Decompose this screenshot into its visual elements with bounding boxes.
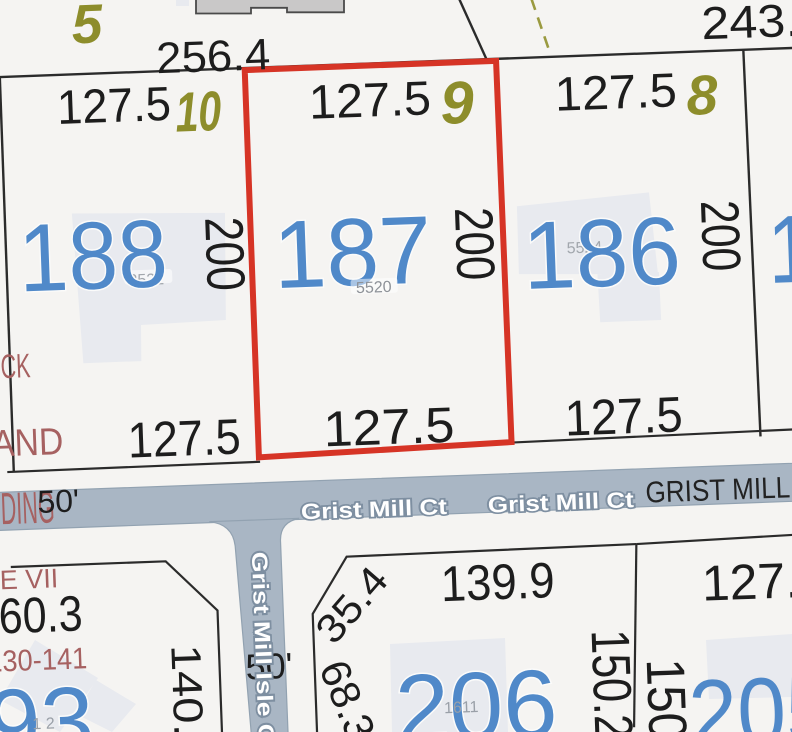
svg-text:50': 50' [37,482,80,520]
svg-text:127.5: 127.5 [56,78,172,135]
svg-text:127.5: 127.5 [127,408,242,468]
svg-text:8: 8 [685,63,719,127]
svg-text:5: 5 [71,0,105,55]
svg-text:GRIST MILL C: GRIST MILL C [645,470,792,509]
svg-text:ROCK: ROCK [0,347,31,387]
svg-text:18: 18 [766,194,792,304]
svg-text:1 2: 1 2 [32,715,55,732]
svg-text:140.: 140. [162,644,212,732]
svg-text:200: 200 [689,199,752,272]
svg-text:127.5: 127.5 [701,551,792,612]
svg-text:60.3: 60.3 [0,585,84,644]
svg-text:206: 206 [393,650,559,732]
svg-text:256.4: 256.4 [155,30,271,83]
svg-text:188: 188 [17,200,170,312]
svg-text:127.5: 127.5 [322,397,455,458]
svg-text:5520: 5520 [356,279,392,297]
svg-text:1611: 1611 [444,699,479,717]
svg-text:139.9: 139.9 [440,552,556,612]
svg-text:LAND: LAND [0,421,64,466]
svg-text:186: 186 [521,197,683,310]
svg-text:127.5: 127.5 [308,72,432,129]
svg-text:205: 205 [687,656,792,732]
svg-text:10: 10 [174,79,222,144]
svg-text:127.5: 127.5 [554,64,678,121]
svg-text:200: 200 [193,216,256,292]
svg-text:150.2: 150.2 [579,628,643,732]
svg-text:200: 200 [443,206,506,281]
svg-text:9: 9 [439,69,475,137]
svg-text:243.3: 243.3 [700,0,792,49]
svg-text:127.5: 127.5 [564,386,684,446]
